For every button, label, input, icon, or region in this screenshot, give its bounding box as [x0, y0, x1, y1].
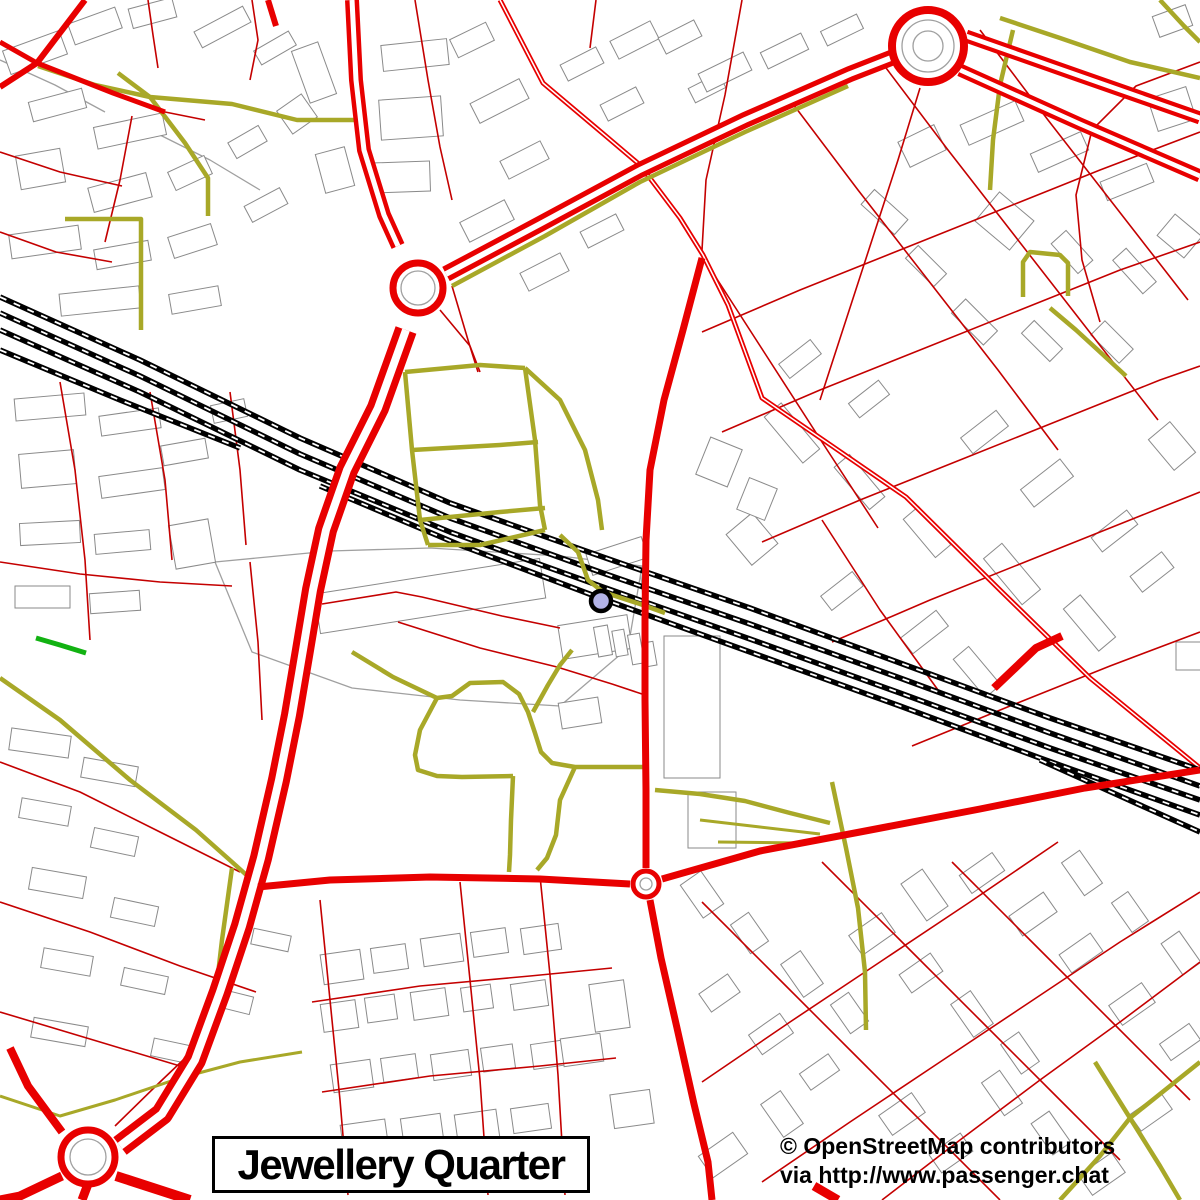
map-label: Jewellery Quarter: [212, 1136, 590, 1193]
map-canvas[interactable]: [0, 0, 1200, 1200]
attribution-line1: © OpenStreetMap contributors: [780, 1132, 1115, 1161]
location-marker[interactable]: [591, 591, 611, 611]
attribution-line2: via http://www.passenger.chat: [780, 1161, 1115, 1190]
marker-layer: [591, 591, 611, 611]
map-label-text: Jewellery Quarter: [237, 1141, 564, 1189]
attribution: © OpenStreetMap contributors via http://…: [780, 1132, 1115, 1190]
map-view[interactable]: Jewellery Quarter © OpenStreetMap contri…: [0, 0, 1200, 1200]
